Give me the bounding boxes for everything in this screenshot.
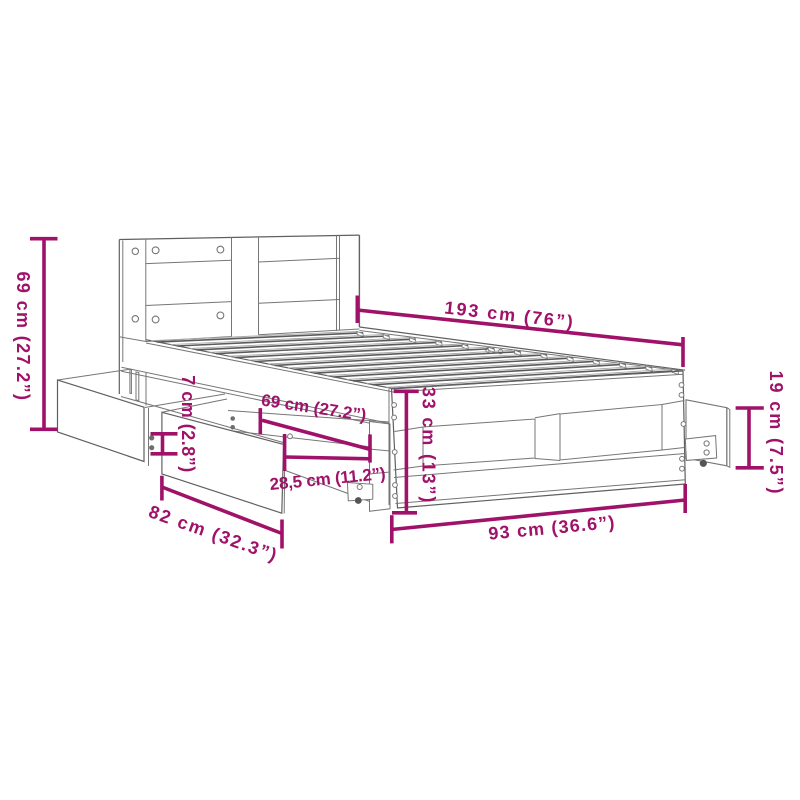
svg-text:33 cm (13”): 33 cm (13”) <box>419 387 439 504</box>
svg-text:7 cm (2.8”): 7 cm (2.8”) <box>178 375 198 473</box>
svg-text:19 cm (7.5”): 19 cm (7.5”) <box>766 371 786 496</box>
svg-text:69 cm (27.2”): 69 cm (27.2”) <box>13 271 33 401</box>
